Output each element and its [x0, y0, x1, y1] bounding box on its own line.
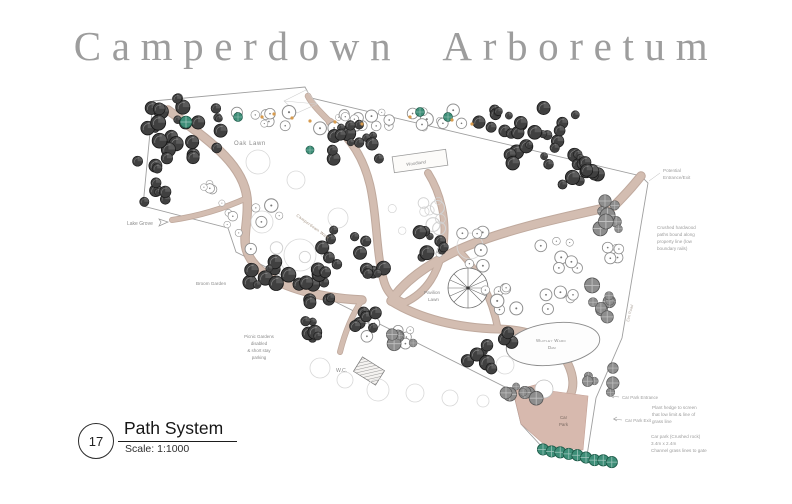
svg-text:boundary rails): boundary rails) — [657, 246, 688, 251]
svg-text:that low limit & line of: that low limit & line of — [652, 412, 696, 417]
svg-text:Car park (Crushed rock): Car park (Crushed rock) — [651, 434, 701, 439]
car-park-exit-arrow-icon — [614, 417, 623, 421]
legend-title: Path System — [118, 418, 237, 442]
plan-sheet: Camperdown Arboretum — [0, 0, 792, 504]
svg-text:paths bound along: paths bound along — [657, 232, 695, 237]
annotation-car-park-exit: Car Park Exit — [625, 418, 652, 423]
broom-garden-label: Broom Garden — [196, 281, 227, 286]
svg-text:Channel grass lines to gate: Channel grass lines to gate — [651, 448, 707, 453]
annotation-car-park-entrance: Car Park Entrance — [622, 395, 659, 400]
drawing-legend: 17 Path System Scale: 1:1000 — [78, 418, 237, 459]
annotation-hardwood-note: Crushed hardwood paths bound along prope… — [657, 225, 696, 251]
svg-text:& short stay: & short stay — [247, 348, 271, 353]
dam-outline — [504, 317, 602, 370]
svg-text:property line (low: property line (low — [657, 239, 693, 244]
svg-text:grass line: grass line — [652, 419, 672, 424]
svg-text:Picnic Gardens: Picnic Gardens — [244, 334, 275, 339]
pavilion-lawn-label-1: Pavilion — [424, 290, 441, 295]
annotation-hedge-note: Plant hedge to screen that low limit & l… — [652, 405, 697, 424]
dam-label-2: Dam — [548, 345, 556, 350]
legend-scale: Scale: 1:1000 — [118, 442, 237, 455]
picnic-note: Picnic Gardens disabled & short stay par… — [244, 334, 275, 360]
road-name-label: Elm Road — [625, 304, 634, 322]
legend-number: 17 — [89, 434, 103, 449]
svg-text:parking: parking — [252, 355, 267, 360]
pavilion-lawn-label-2: Lawn — [428, 297, 439, 302]
wc-label: W.C. — [336, 368, 347, 374]
path-name-label: Camperdown Walk — [295, 213, 330, 240]
car-park-label-1: Car — [560, 415, 568, 420]
svg-text:Potential: Potential — [663, 168, 681, 173]
legend-number-circle: 17 — [78, 423, 114, 459]
svg-text:Entrance/Exit: Entrance/Exit — [663, 175, 691, 180]
annotation-potential-entrance: Potential Entrance/Exit — [663, 168, 691, 180]
annotation-car-park-note: Car park (Crushed rock) 3.4m x 2.4m Chan… — [651, 434, 707, 453]
entrance-leader-line — [649, 173, 660, 181]
svg-text:Plant hedge to screen: Plant hedge to screen — [652, 405, 697, 410]
lake-grove-label: Lake Grove — [127, 221, 153, 227]
wc-building — [353, 357, 384, 385]
svg-text:Crushed hardwood: Crushed hardwood — [657, 225, 696, 230]
car-park-label-2: Park — [559, 422, 569, 427]
oak-lawn-label: Oak Lawn — [234, 141, 266, 147]
dam-label-1: Whitley Ward — [536, 338, 566, 343]
lake-grove-arrow-icon — [159, 219, 168, 226]
svg-text:3.4m x 2.4m: 3.4m x 2.4m — [651, 441, 676, 446]
svg-text:disabled: disabled — [251, 341, 268, 346]
